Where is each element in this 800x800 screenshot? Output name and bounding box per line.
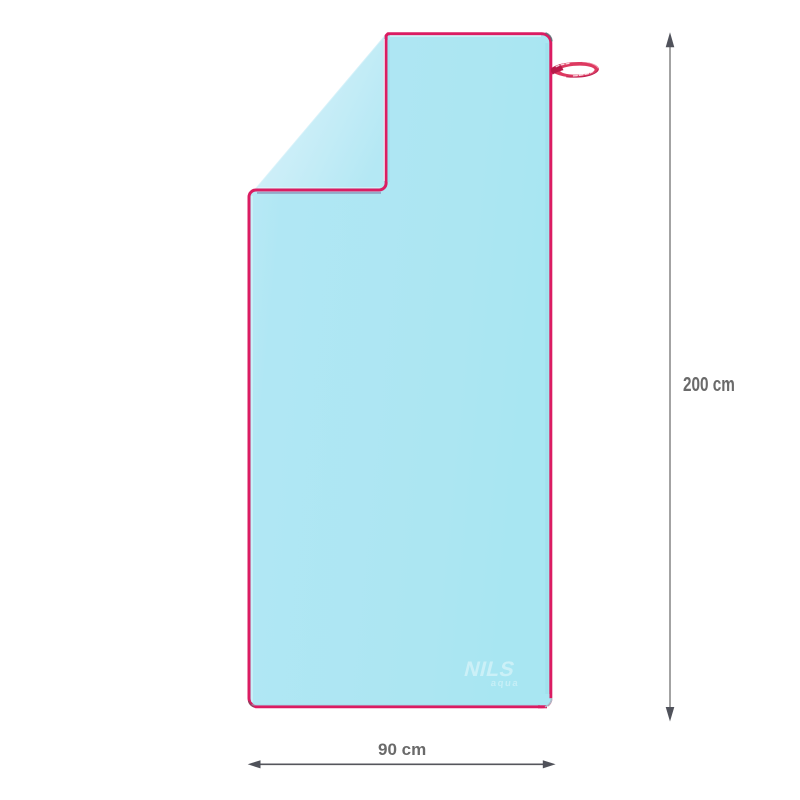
svg-text:aqua: aqua [490,678,520,689]
